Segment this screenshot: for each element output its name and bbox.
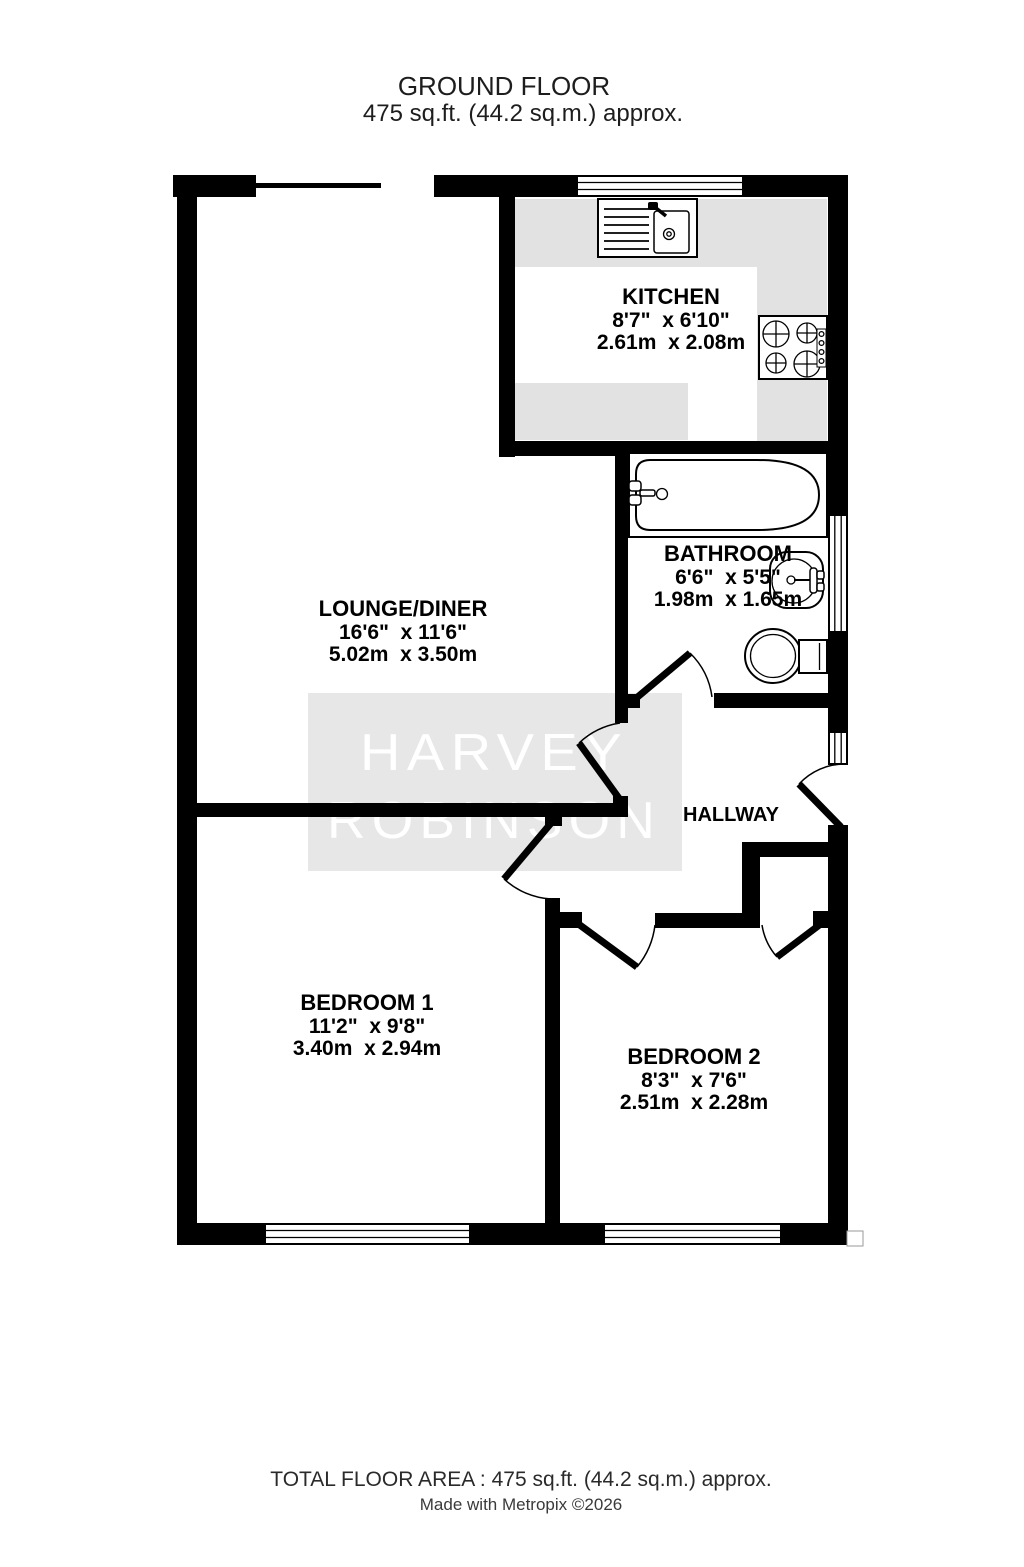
page-title: GROUND FLOOR	[398, 71, 610, 101]
toilet	[745, 629, 827, 683]
svg-text:BEDROOM 1: BEDROOM 1	[300, 990, 433, 1015]
wall-lounge-bedroom1	[177, 803, 628, 817]
svg-text:BEDROOM 2: BEDROOM 2	[627, 1044, 760, 1069]
bedroom1-label: BEDROOM 1 11'2" x 9'8" 3.40m x 2.94m	[293, 990, 441, 1060]
bedroom2-label: BEDROOM 2 8'3" x 7'6" 2.51m x 2.28m	[620, 1044, 768, 1114]
bathroom-door	[634, 653, 712, 700]
floorplan-page: GROUND FLOOR 475 sq.ft. (44.2 sq.m.) app…	[0, 0, 1024, 1567]
svg-text:KITCHEN: KITCHEN	[622, 284, 720, 309]
watermark-line2: ROBINSON	[327, 792, 661, 850]
total-floor-area: TOTAL FLOOR AREA : 475 sq.ft. (44.2 sq.m…	[270, 1468, 771, 1491]
hob-knobs	[817, 329, 826, 367]
kitchen-sink	[598, 199, 697, 257]
bathroom-label: BATHROOM 6'6" x 5'5" 1.98m x 1.65m	[654, 541, 802, 611]
bedroom2-door	[573, 920, 655, 967]
kitchen-label: KITCHEN 8'7" x 6'10" 2.61m x 2.08m	[597, 284, 745, 354]
svg-text:2.61m x 2.08m: 2.61m x 2.08m	[597, 331, 745, 354]
open-boundary-line	[256, 183, 381, 188]
svg-text:11'2" x 9'8": 11'2" x 9'8"	[309, 1015, 425, 1038]
svg-text:16'6" x 11'6": 16'6" x 11'6"	[339, 621, 467, 644]
svg-text:5.02m x 3.50m: 5.02m x 3.50m	[329, 643, 477, 666]
svg-text:8'7" x 6'10": 8'7" x 6'10"	[612, 309, 729, 332]
wall-right-mid	[828, 632, 848, 732]
svg-text:BATHROOM: BATHROOM	[664, 541, 792, 566]
floorplan-drawing: GROUND FLOOR 475 sq.ft. (44.2 sq.m.) app…	[0, 0, 1024, 1567]
svg-text:1.98m x 1.65m: 1.98m x 1.65m	[654, 588, 802, 611]
bath	[629, 453, 827, 537]
bedroom1-window	[265, 1224, 470, 1244]
wall-kitchen-left	[499, 175, 515, 457]
page-subtitle: 475 sq.ft. (44.2 sq.m.) approx.	[363, 100, 683, 127]
hallway-label: HALLWAY	[683, 804, 780, 826]
front-door	[799, 764, 845, 827]
wall-cupboard-left	[742, 842, 760, 928]
credit-line: Made with Metropix ©2026	[420, 1495, 622, 1514]
wall-left-exterior	[177, 175, 197, 1245]
sink-basin	[654, 211, 689, 253]
wall-lounge-bathroom	[615, 456, 628, 723]
wall-bathroom-south	[714, 693, 828, 708]
svg-text:6'6" x 5'5": 6'6" x 5'5"	[675, 566, 781, 589]
cupboard-door	[762, 920, 826, 957]
bedroom2-window	[604, 1224, 781, 1244]
bathroom-window	[829, 515, 847, 632]
svg-text:3.40m x 2.94m: 3.40m x 2.94m	[293, 1037, 441, 1060]
wall-bedroom1-bedroom2	[545, 898, 560, 1223]
lounge-label: LOUNGE/DINER 16'6" x 11'6" 5.02m x 3.50m	[319, 596, 488, 666]
hallway-window	[829, 732, 847, 764]
svg-text:8'3" x 7'6": 8'3" x 7'6"	[641, 1069, 747, 1092]
svg-text:LOUNGE/DINER: LOUNGE/DINER	[319, 596, 488, 621]
wall-right-upper	[828, 175, 848, 515]
corner-mark	[847, 1231, 863, 1246]
svg-text:2.51m x 2.28m: 2.51m x 2.28m	[620, 1091, 768, 1114]
toilet-cistern	[799, 640, 827, 673]
svg-text:HALLWAY: HALLWAY	[683, 804, 780, 826]
hob	[759, 316, 827, 379]
kitchen-window	[577, 176, 743, 196]
wall-right-lower	[828, 825, 848, 1245]
